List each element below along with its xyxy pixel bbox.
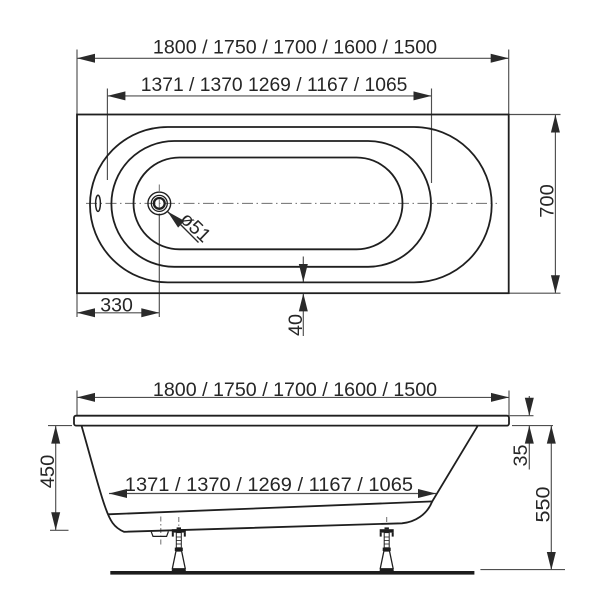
svg-text:35: 35 [510,444,532,466]
svg-text:1800 / 1750 / 1700 / 1600 / 15: 1800 / 1750 / 1700 / 1600 / 1500 [153,379,437,401]
svg-text:1371 / 1370 / 1269 / 1167 / 1: 1371 / 1370 / 1269 / 1167 / 1065 [125,474,413,496]
svg-text:450: 450 [37,455,59,489]
svg-text:550: 550 [533,486,555,522]
svg-text:40: 40 [285,314,307,336]
svg-text:1800 / 1750 / 1700 / 1600 / 15: 1800 / 1750 / 1700 / 1600 / 1500 [153,37,437,59]
svg-text:1371 / 1370 1269 / 1167 / 1065: 1371 / 1370 1269 / 1167 / 1065 [141,74,408,96]
svg-text:330: 330 [100,295,133,317]
svg-text:700: 700 [537,184,559,218]
